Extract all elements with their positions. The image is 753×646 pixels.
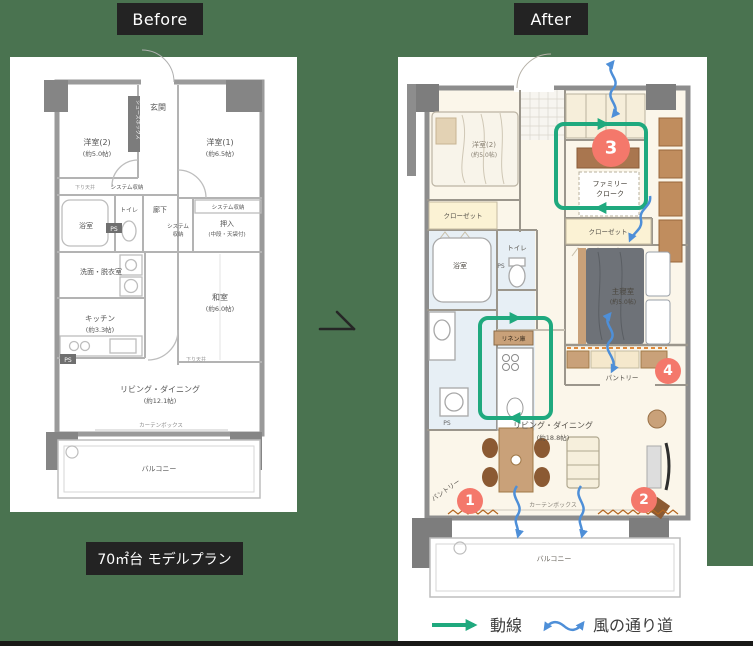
before-toilet-label: トイレ	[120, 207, 138, 214]
after-floor-plan: 洋室(2) (約5.0帖) ファミリー クローク クローゼット クローゼット 浴…	[407, 54, 688, 635]
model-plan-caption: 70㎡台 モデルプラン	[86, 542, 243, 575]
before-yoshitsu2-label: 洋室(2)	[83, 137, 110, 147]
before-system-storage-b2: 収納	[172, 230, 184, 238]
marker-3: 3	[592, 129, 630, 167]
after-closet-right-label: クローゼット	[589, 227, 628, 236]
legend-wind-arrow	[545, 622, 583, 630]
marker-2-number: 2	[639, 492, 649, 508]
after-yoshitsu2-label: 洋室(2)	[472, 140, 496, 149]
marker-4: 4	[655, 358, 681, 384]
before-system-storage-c: システム収納	[212, 203, 245, 211]
before-yoshitsu2-size: (約5.0帖)	[83, 149, 111, 158]
before-tab: Before	[117, 3, 203, 35]
before-system-storage-b1: システム	[167, 223, 189, 230]
after-ps-label-1: PS	[497, 263, 505, 270]
after-closet-left-label: クローゼット	[444, 211, 483, 220]
after-master-bed	[578, 248, 670, 344]
before-entrance-opening	[141, 77, 174, 87]
before-after-floorplan-page: { "page": { "before_tab": "Before", "aft…	[0, 0, 753, 646]
marker-1-number: 1	[465, 493, 475, 509]
after-living-size: (約18.8帖)	[537, 433, 570, 442]
after-tab: After	[514, 3, 588, 35]
before-curtain-box-label: カーテンボックス	[139, 421, 183, 429]
marker-4-number: 4	[663, 363, 673, 379]
before-yoshitsu1-label: 洋室(1)	[206, 137, 233, 147]
after-bed-sketch	[432, 112, 518, 186]
after-side-wall	[407, 84, 416, 176]
before-senmen-label: 洗面・脱衣室	[80, 267, 122, 276]
before-ps-label-1: PS	[110, 226, 118, 233]
after-family-cloak-label-1: ファミリー	[593, 180, 628, 188]
marker-2: 2	[631, 487, 657, 513]
after-living-label: リビング・ダイニング	[513, 420, 593, 430]
after-pantry-shelves	[567, 348, 667, 368]
after-master-label: 主寝室	[612, 286, 635, 296]
before-balcony-label: バルコニー	[142, 465, 177, 473]
before-sagari-tenjo-1: 下り天井	[75, 184, 95, 191]
after-pantry-right-label: パントリー	[606, 374, 639, 382]
after-yoshitsu2-size: (約5.0帖)	[471, 151, 497, 159]
after-toilet-label: トイレ	[507, 244, 527, 252]
after-bath-label: 浴室	[453, 261, 467, 270]
before-system-storage-a: システム収納	[111, 183, 144, 191]
marker-1: 1	[457, 488, 483, 514]
before-yoshitsu1-size: (約6.5帖)	[206, 149, 234, 158]
before-genkan-label: 玄関	[150, 102, 166, 112]
before-kitchen-label: キッチン	[85, 314, 115, 323]
before-oshiire-note: (中段・天袋付)	[208, 230, 245, 238]
before-floor-plan: シューズボックス PS PS 玄関 洋室(2) (約5.0帖) 洋室(1) (約…	[44, 50, 262, 498]
after-linen-label: リネン庫	[501, 335, 525, 343]
after-family-cloak-label-2: クローク	[596, 190, 624, 198]
before-sagari-tenjo-2: 下り天井	[186, 356, 206, 363]
legend: 動線 風の通り道	[432, 616, 673, 635]
before-bath-label: 浴室	[79, 221, 93, 230]
marker-3-number: 3	[605, 138, 618, 159]
before-washitsu-size: (約6.0帖)	[206, 304, 234, 313]
before-living-size: (約12.1帖)	[144, 396, 177, 405]
after-wall-cabinets	[659, 118, 682, 262]
after-master-size: (約5.0帖)	[610, 298, 636, 306]
after-balcony	[430, 538, 680, 597]
before-kitchen-size: (約3.3帖)	[86, 325, 114, 334]
after-entrance-door-arc	[517, 54, 551, 88]
legend-flow-label: 動線	[490, 616, 522, 635]
after-ps-label-2: PS	[443, 420, 451, 427]
after-balcony-label: バルコニー	[537, 555, 572, 563]
before-oshiire-label: 押入	[220, 219, 234, 228]
before-shoes-box-label: シューズボックス	[135, 100, 142, 140]
before-washitsu-label: 和室	[212, 292, 228, 302]
before-to-after-arrow	[320, 312, 354, 329]
before-ps-label-2: PS	[64, 357, 72, 364]
legend-wind-label: 風の通り道	[593, 616, 673, 635]
footer-strip	[0, 641, 753, 646]
before-roka-label: 廊下	[153, 205, 167, 214]
after-curtain-box-label: カーテンボックス	[529, 501, 577, 509]
before-living-label: リビング・ダイニング	[120, 384, 200, 394]
